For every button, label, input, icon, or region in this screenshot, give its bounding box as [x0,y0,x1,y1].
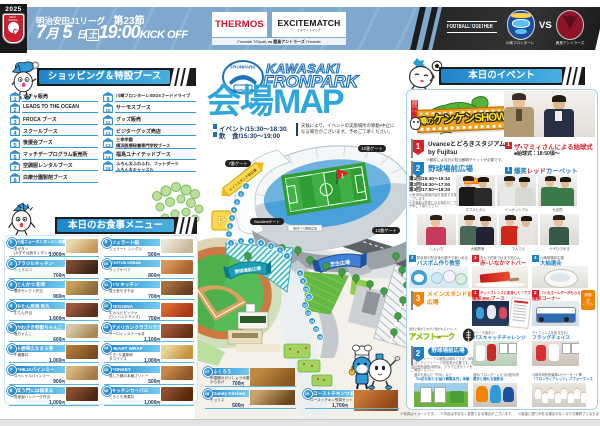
svg-text:3: 3 [236,200,238,204]
svg-text:7番ゲート: 7番ゲート [228,160,247,167]
svg-text:11: 11 [106,119,111,124]
svg-text:2: 2 [416,164,421,173]
svg-text:10: 10 [105,108,111,113]
svg-text:1: 1 [230,241,232,245]
svg-text:場内バス停前広場: 場内バス停前広場 [293,226,317,231]
svg-text:14: 14 [105,154,111,159]
svg-text:2: 2 [13,108,16,113]
svg-text:⚡: ⚡ [466,339,470,343]
svg-text:5: 5 [270,244,272,248]
svg-text:12: 12 [105,131,111,136]
svg-text:9: 9 [302,279,304,283]
svg-text:2: 2 [240,239,242,243]
svg-text:7: 7 [228,232,230,236]
svg-text:7: 7 [13,166,16,171]
svg-text:1: 1 [13,96,16,101]
svg-text:P: P [217,214,225,228]
svg-text:13番ゲート: 13番ゲート [375,227,396,234]
svg-text:8: 8 [299,271,301,275]
svg-text:11: 11 [307,295,311,299]
svg-text:13: 13 [105,143,111,148]
svg-text:5: 5 [13,143,16,148]
svg-text:Bandieraゲート: Bandieraゲート [254,219,280,224]
svg-text:6: 6 [279,248,281,252]
svg-text:4: 4 [260,241,262,245]
svg-text:6: 6 [13,154,16,159]
svg-text:3: 3 [250,239,252,243]
svg-text:13: 13 [306,311,310,315]
svg-text:3: 3 [13,119,16,124]
svg-text:4: 4 [233,208,235,212]
svg-text:9: 9 [106,96,109,101]
svg-text:10: 10 [304,287,308,291]
svg-text:14: 14 [310,319,314,323]
svg-text:1: 1 [416,142,421,151]
svg-text:16: 16 [318,335,322,339]
svg-text:1: 1 [245,184,247,188]
svg-text:12: 12 [303,303,307,307]
svg-text:3: 3 [416,294,421,303]
svg-text:6: 6 [229,224,231,228]
svg-text:7: 7 [286,254,288,258]
svg-text:15: 15 [314,327,318,331]
svg-text:FRONPARK: FRONPARK [230,65,256,70]
svg-text:5: 5 [231,216,233,220]
svg-text:2: 2 [240,192,242,196]
svg-text:1: 1 [341,174,344,180]
svg-text:10番ゲート: 10番ゲート [361,145,382,152]
svg-text:8: 8 [13,177,16,182]
svg-text:15: 15 [105,166,111,171]
